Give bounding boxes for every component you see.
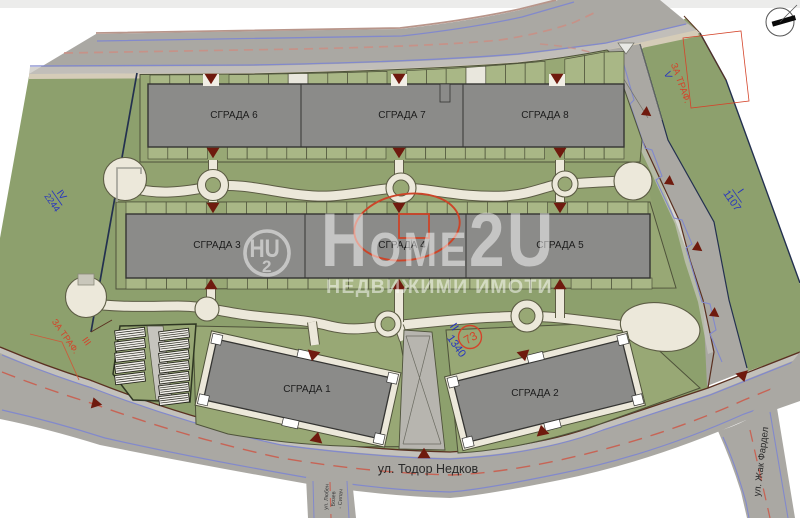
svg-text:ул. Тодор Недков: ул. Тодор Недков: [378, 462, 479, 476]
svg-text:Бозев: Бозев: [331, 491, 338, 506]
svg-text:НЕДВИЖИМИ ИМОТИ: НЕДВИЖИМИ ИМОТИ: [326, 277, 553, 298]
svg-text:СГРАДА 8: СГРАДА 8: [521, 110, 569, 121]
svg-text:СГРАДА 3: СГРАДА 3: [193, 240, 241, 251]
svg-text:СГРАДА 7: СГРАДА 7: [378, 110, 426, 121]
svg-text:СГРАДА 2: СГРАДА 2: [511, 388, 559, 399]
svg-text:2: 2: [262, 257, 271, 276]
svg-text:СГРАДА 6: СГРАДА 6: [210, 110, 258, 121]
svg-text:СГРАДА 1: СГРАДА 1: [283, 384, 331, 395]
svg-text:- Силач: - Силач: [337, 489, 344, 509]
